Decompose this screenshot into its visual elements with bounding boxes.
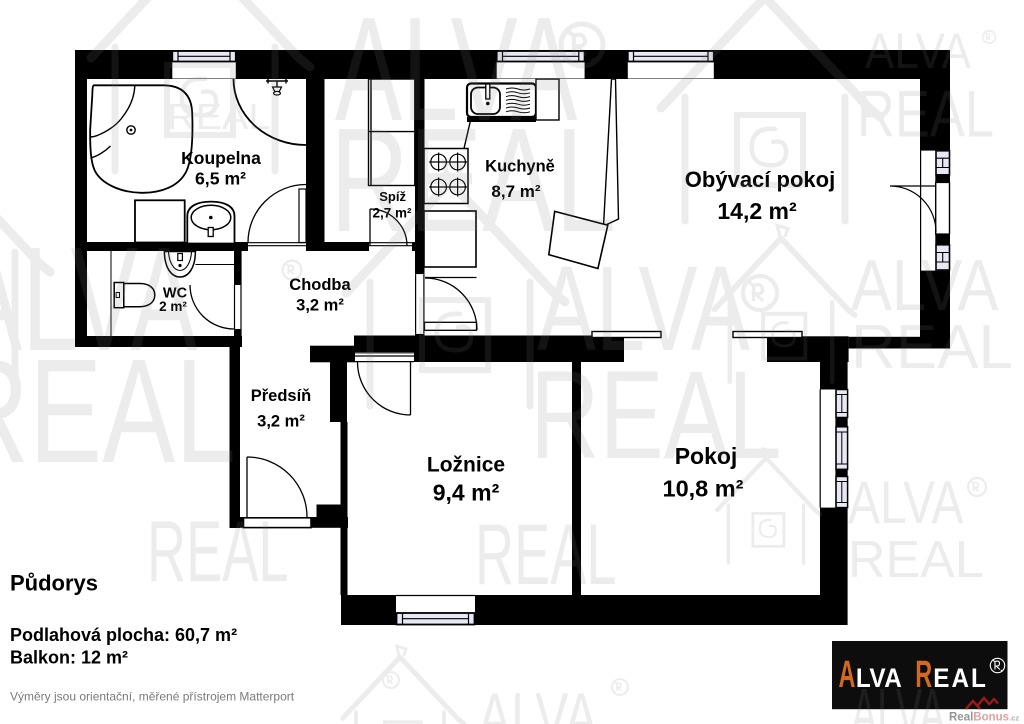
svg-text:Balkon: 12 m²: Balkon: 12 m² — [10, 648, 128, 668]
svg-text:REAL: REAL — [530, 345, 782, 485]
svg-text:3,2 m²: 3,2 m² — [257, 413, 305, 431]
svg-text:Koupelna: Koupelna — [181, 148, 261, 168]
svg-text:ALVA: ALVA — [865, 22, 972, 78]
svg-text:3,2 m²: 3,2 m² — [296, 297, 344, 315]
svg-text:REAL: REAL — [857, 77, 994, 151]
svg-text:9,4 m²: 9,4 m² — [433, 480, 500, 506]
svg-text:Půdorys: Půdorys — [10, 571, 98, 596]
svg-text:Výměry jsou orientační, měřené: Výměry jsou orientační, měřené přístroje… — [10, 690, 295, 704]
svg-text:ALVA: ALVA — [478, 678, 598, 724]
svg-text:Obývací pokoj: Obývací pokoj — [685, 167, 835, 192]
svg-text:REAL: REAL — [475, 507, 617, 603]
svg-text:RealBonus.cz: RealBonus.cz — [949, 712, 1019, 724]
svg-text:Ložnice: Ložnice — [427, 454, 505, 477]
svg-text:Předsíň: Předsíň — [251, 387, 312, 405]
svg-text:REAL: REAL — [848, 531, 984, 589]
svg-text:ALVA: ALVA — [848, 469, 964, 536]
svg-text:Podlahová plocha: 60,7 m²: Podlahová plocha: 60,7 m² — [10, 625, 237, 645]
svg-text:14,2 m²: 14,2 m² — [717, 198, 797, 224]
svg-text:ALVA: ALVA — [851, 675, 946, 724]
svg-text:REAL: REAL — [147, 504, 289, 600]
svg-text:REAL: REAL — [851, 313, 1013, 382]
svg-text:6,5 m²: 6,5 m² — [195, 169, 246, 189]
